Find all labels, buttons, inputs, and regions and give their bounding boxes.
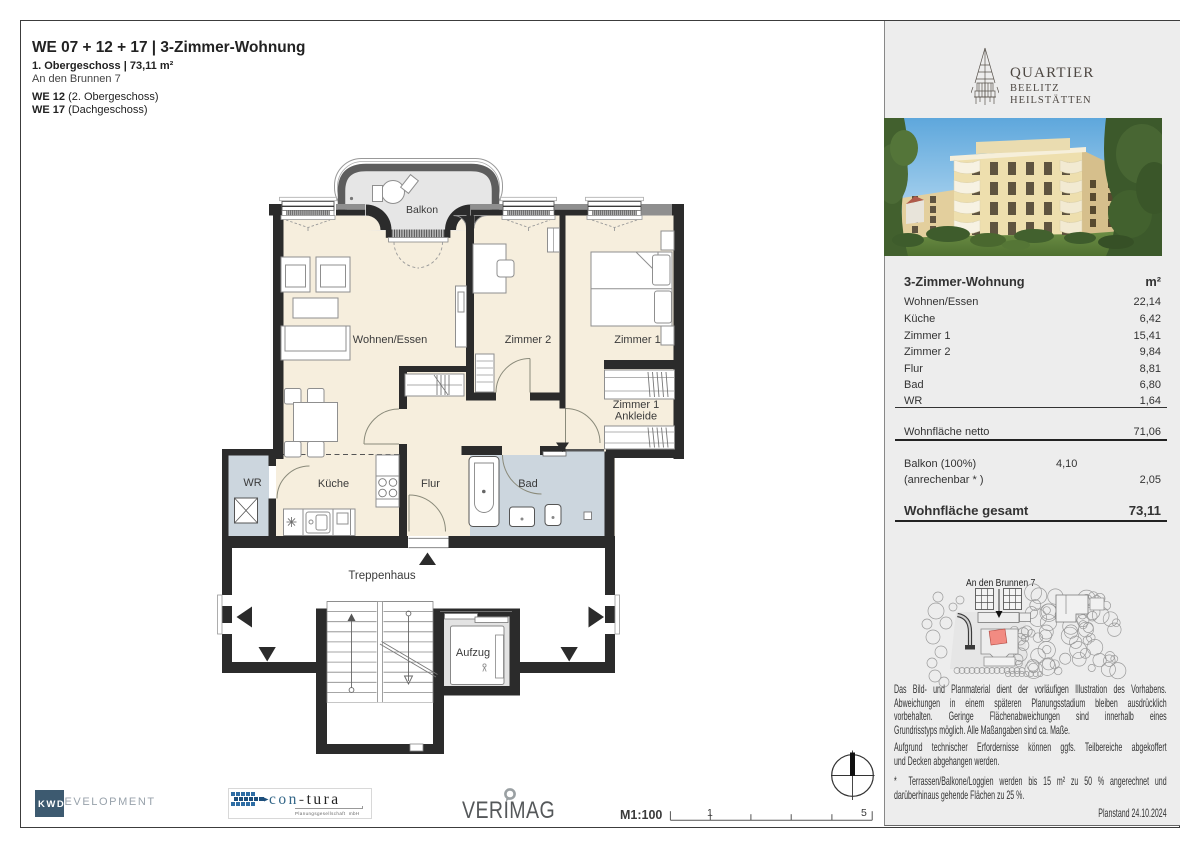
- svg-text:M1:100: M1:100: [620, 808, 662, 822]
- svg-text:Balkon: Balkon: [406, 204, 438, 216]
- svg-text:WR: WR: [243, 477, 261, 489]
- svg-text:Aufzug: Aufzug: [456, 647, 490, 659]
- svg-text:Flur: Flur: [421, 478, 440, 490]
- svg-text:Treppenhaus: Treppenhaus: [348, 570, 416, 582]
- svg-text:Bad: Bad: [518, 478, 538, 490]
- svg-text:1: 1: [707, 807, 713, 819]
- svg-text:5: 5: [861, 807, 867, 819]
- svg-text:Ankleide: Ankleide: [615, 411, 657, 423]
- svg-text:Zimmer 1: Zimmer 1: [613, 399, 659, 411]
- svg-text:Zimmer 2: Zimmer 2: [505, 334, 551, 346]
- svg-text:Küche: Küche: [318, 478, 349, 490]
- svg-text:Wohnen/Essen: Wohnen/Essen: [353, 334, 427, 346]
- svg-text:Zimmer 1: Zimmer 1: [614, 334, 660, 346]
